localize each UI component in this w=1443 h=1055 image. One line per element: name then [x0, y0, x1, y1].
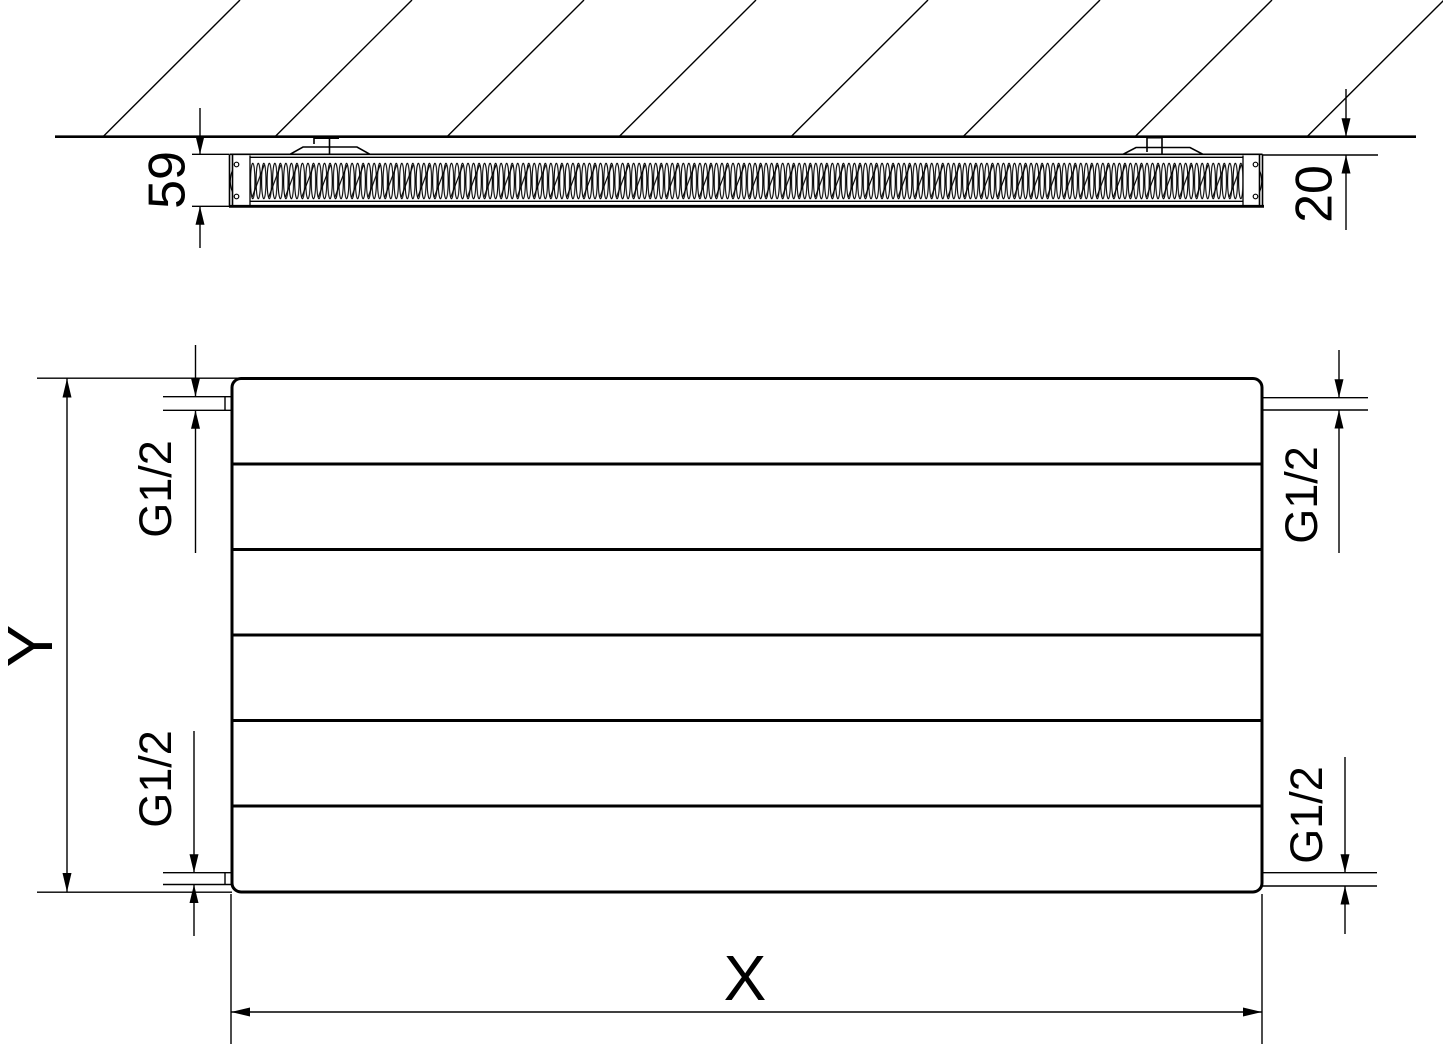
height-dimension-y: Y: [0, 378, 247, 892]
height-label: Y: [0, 625, 66, 668]
arrow-down-icon: [190, 854, 199, 873]
g12-dimension-bottom-right: G1/2: [1281, 757, 1349, 934]
thread-label-top-right: G1/2: [1276, 446, 1327, 544]
arrow-down-icon: [191, 378, 200, 397]
arrow-up-icon: [1335, 410, 1344, 429]
top-view-radiator: [229, 138, 1264, 207]
bracket-hook: [1147, 138, 1162, 152]
thread-label-bottom-left: G1/2: [130, 730, 181, 828]
arrow-down-icon: [196, 136, 205, 155]
connection-stub-top-right: [1261, 398, 1368, 410]
arrow-down-icon: [1342, 118, 1351, 137]
arrow-down-icon: [1341, 854, 1350, 873]
plug-hole: [1253, 162, 1258, 167]
arrow-up-icon: [196, 206, 205, 225]
width-dimension-x: X: [231, 894, 1262, 1044]
arrow-up-icon: [190, 885, 199, 904]
thread-label-top-left: G1/2: [130, 440, 181, 538]
arrow-up-icon: [63, 379, 72, 398]
depth-label: 59: [139, 151, 197, 209]
wall-bracket-right: [1123, 138, 1203, 155]
wall-bracket-left: [290, 138, 370, 154]
panel-groove-lines: [234, 464, 1261, 806]
connection-stub-bottom-right: [1261, 873, 1377, 886]
wall-section: [55, 0, 1443, 137]
g12-dimension-top-right: G1/2: [1276, 350, 1343, 553]
arrow-down-icon: [63, 873, 72, 892]
depth-dimension-59: 59: [139, 108, 233, 248]
arrow-left-icon: [231, 1008, 250, 1017]
radiator-technical-drawing: 59 20: [0, 0, 1443, 1055]
plug-hole: [234, 162, 239, 167]
wall-distance-dimension-20: 20: [1263, 89, 1379, 230]
arrow-up-icon: [1341, 886, 1350, 905]
arrow-down-icon: [1335, 379, 1344, 398]
plug-hole: [234, 194, 239, 199]
plug-hole: [1253, 194, 1258, 199]
arrow-right-icon: [1243, 1008, 1262, 1017]
end-cap-left: [230, 154, 251, 206]
connection-stub-bottom-left: [163, 873, 233, 885]
g12-dimension-top-left: G1/2: [130, 345, 200, 553]
wall-hatching: [103, 0, 1443, 137]
g12-dimension-bottom-left: G1/2: [130, 730, 198, 936]
end-cap-right: [1243, 154, 1263, 206]
connection-stub-top-left: [163, 397, 233, 411]
width-label: X: [724, 942, 767, 1014]
convector-fins-diagonals: [250, 162, 1243, 200]
bracket-hook: [314, 138, 339, 144]
front-view-radiator: [163, 379, 1377, 893]
thread-label-bottom-right: G1/2: [1281, 766, 1332, 864]
arrow-up-icon: [191, 410, 200, 429]
wall-distance-label: 20: [1286, 165, 1344, 223]
